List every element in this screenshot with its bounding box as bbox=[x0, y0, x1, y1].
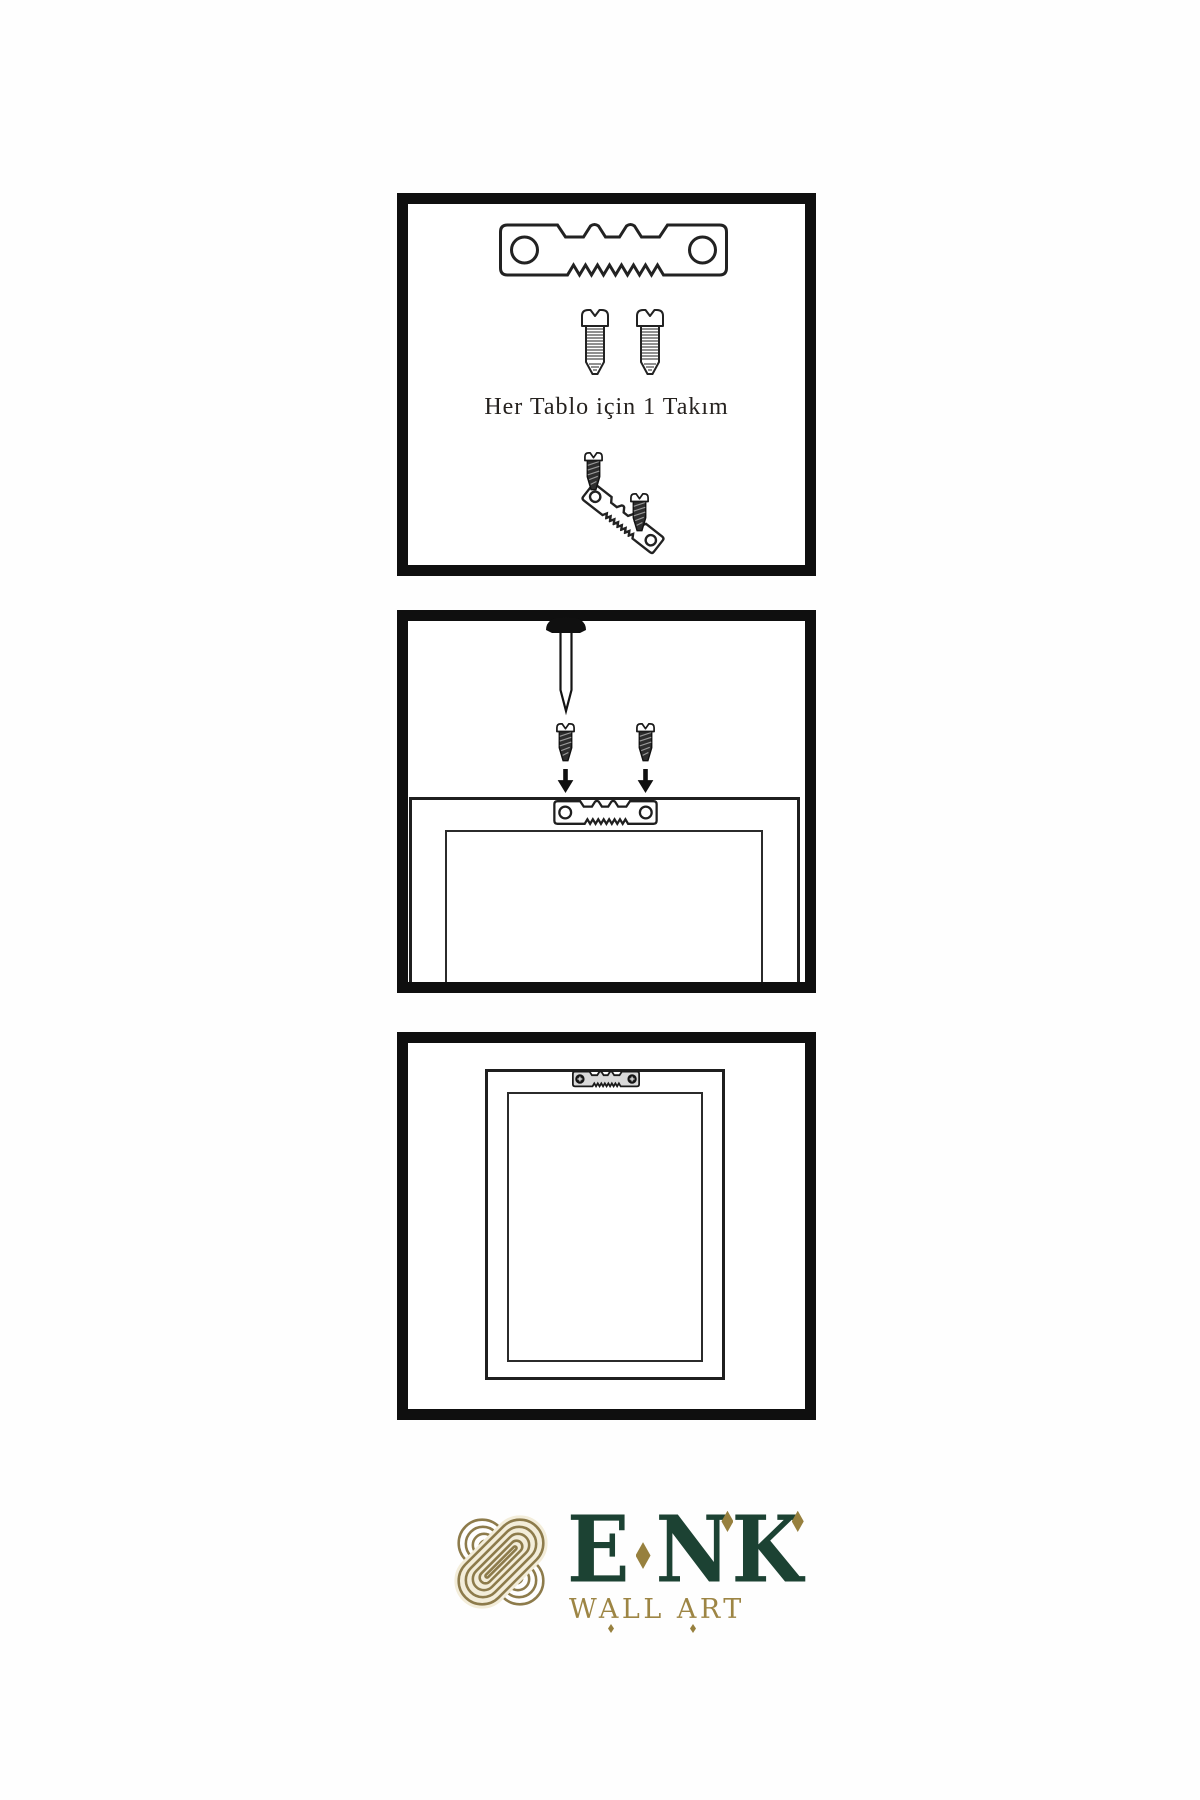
diamond-accent-icon bbox=[792, 1511, 804, 1532]
phillips-screw-head-icon bbox=[577, 1076, 583, 1082]
arrow-down-icon bbox=[637, 769, 654, 793]
dark-screw-icon bbox=[629, 491, 650, 535]
brand-lockup: E N K WALL ART bbox=[437, 1498, 797, 1648]
dark-screw-icon bbox=[555, 721, 576, 765]
frame-back-inner-outline bbox=[445, 830, 763, 982]
diamond-accent-icon bbox=[636, 1542, 651, 1569]
mounted-sawtooth-hanger-icon bbox=[572, 1070, 640, 1088]
brand-name: E N K bbox=[567, 1504, 804, 1596]
frame-back-inner-outline bbox=[507, 1092, 703, 1362]
brand-letter-k: K bbox=[731, 1504, 803, 1596]
interlocked-knot-icon bbox=[437, 1498, 565, 1626]
wall-nail-icon bbox=[544, 616, 588, 716]
instruction-sheet: Her Tablo için 1 Takım bbox=[0, 0, 1200, 1800]
diamond-dot-icon bbox=[690, 1624, 696, 1633]
machine-screw-icon bbox=[633, 306, 667, 380]
machine-screw-icon bbox=[578, 306, 612, 380]
brand-tagline-text: WALL ART bbox=[569, 1594, 745, 1625]
dark-screw-icon bbox=[583, 450, 604, 494]
phillips-screw-head-icon bbox=[629, 1076, 635, 1082]
dark-screw-icon bbox=[635, 721, 656, 765]
brand-tagline: WALL ART bbox=[569, 1594, 745, 1625]
arrow-down-icon bbox=[557, 769, 574, 793]
brand-letter-n: N bbox=[656, 1504, 732, 1596]
diamond-dot-icon bbox=[608, 1624, 614, 1633]
sawtooth-hanger-icon bbox=[553, 799, 658, 826]
sawtooth-hanger-icon bbox=[497, 222, 730, 278]
kit-caption: Her Tablo için 1 Takım bbox=[397, 394, 816, 421]
brand-letter-e: E bbox=[567, 1504, 631, 1596]
